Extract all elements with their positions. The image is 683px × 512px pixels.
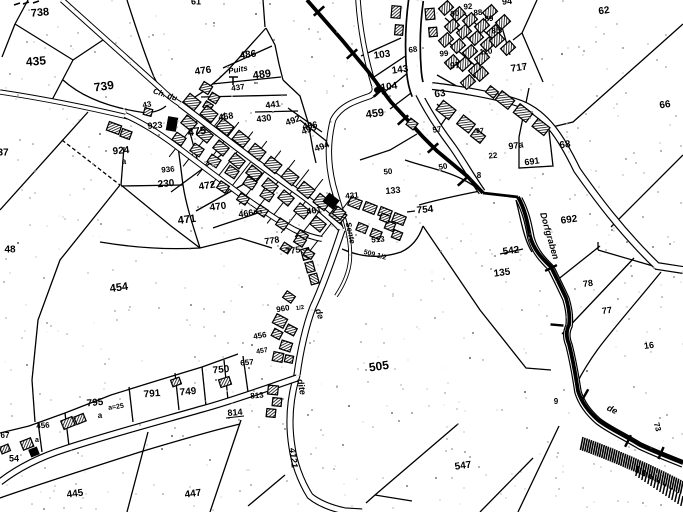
svg-text:505: 505 (368, 358, 390, 375)
svg-text:48: 48 (4, 245, 16, 256)
svg-text:468: 468 (218, 110, 234, 122)
svg-text:78: 78 (582, 278, 593, 289)
svg-text:68: 68 (408, 44, 419, 54)
svg-text:795: 795 (86, 397, 104, 409)
svg-text:92: 92 (463, 2, 473, 12)
svg-text:68: 68 (559, 139, 572, 152)
svg-text:133: 133 (385, 185, 401, 196)
svg-text:54: 54 (9, 453, 19, 463)
svg-text:750: 750 (212, 364, 230, 376)
svg-text:230: 230 (157, 178, 175, 190)
svg-text:489: 489 (252, 68, 272, 82)
svg-text:22: 22 (488, 151, 498, 161)
svg-text:923: 923 (147, 120, 163, 131)
svg-text:67: 67 (1, 431, 10, 440)
svg-text:924: 924 (112, 145, 130, 157)
svg-text:61: 61 (191, 0, 201, 6)
svg-text:63: 63 (434, 88, 447, 101)
svg-text:66: 66 (659, 99, 672, 112)
svg-text:749: 749 (179, 386, 197, 398)
svg-text:37: 37 (0, 148, 9, 159)
svg-text:936: 936 (161, 164, 176, 174)
svg-text:99: 99 (439, 49, 449, 59)
svg-text:9: 9 (554, 397, 559, 406)
svg-text:62: 62 (598, 5, 611, 18)
svg-text:94: 94 (502, 0, 513, 7)
svg-text:754: 754 (416, 204, 434, 216)
svg-text:110: 110 (479, 47, 493, 57)
svg-text:a: a (35, 437, 39, 444)
svg-text:778: 778 (264, 234, 280, 246)
svg-text:8: 8 (477, 171, 482, 180)
svg-text:739: 739 (93, 78, 115, 95)
svg-text:90: 90 (450, 9, 460, 19)
svg-text:513: 513 (371, 234, 386, 244)
svg-text:691: 691 (524, 155, 540, 167)
svg-text:97: 97 (476, 128, 484, 136)
svg-text:88: 88 (473, 8, 483, 18)
svg-text:471: 471 (177, 213, 197, 227)
svg-text:97: 97 (450, 60, 461, 71)
svg-text:435: 435 (25, 53, 46, 69)
svg-text:436: 436 (302, 119, 318, 131)
svg-text:475: 475 (187, 125, 207, 139)
svg-text:a: a (122, 157, 127, 166)
svg-text:813: 813 (250, 390, 265, 400)
svg-text:89: 89 (484, 14, 494, 24)
svg-text:775: 775 (285, 244, 301, 256)
svg-text:77: 77 (601, 305, 612, 316)
svg-text:738: 738 (30, 6, 49, 20)
svg-text:441: 441 (265, 98, 281, 110)
svg-text:431: 431 (345, 190, 360, 200)
svg-text:430: 430 (256, 112, 272, 124)
svg-text:50: 50 (383, 167, 393, 177)
svg-text:456: 456 (36, 420, 51, 430)
svg-text:461: 461 (306, 204, 322, 216)
svg-text:791: 791 (143, 388, 161, 400)
svg-text:459: 459 (365, 107, 385, 121)
svg-text:466: 466 (238, 207, 254, 219)
svg-text:85: 85 (491, 26, 501, 36)
svg-text:a: a (98, 411, 103, 420)
svg-text:657: 657 (240, 357, 255, 367)
svg-text:16: 16 (643, 340, 654, 351)
